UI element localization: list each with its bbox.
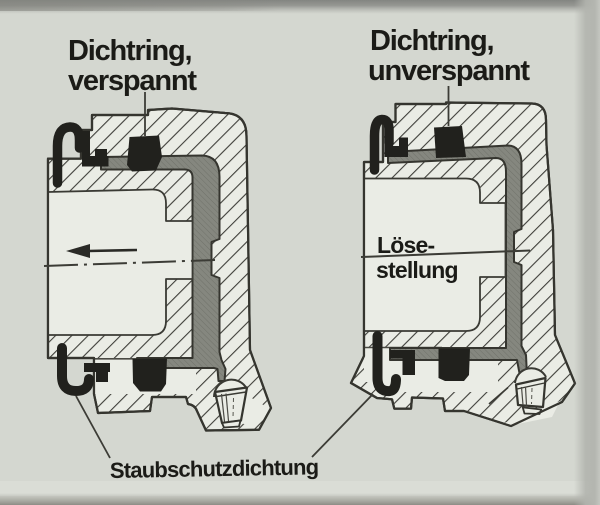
svg-text:Staubschutzdichtung: Staubschutzdichtung [110,454,319,483]
svg-text:Dichtring,: Dichtring, [68,35,191,67]
svg-text:Dichtring,: Dichtring, [370,25,493,57]
svg-text:Löse-: Löse- [377,232,434,258]
svg-text:unverspannt: unverspannt [368,55,530,87]
svg-text:verspannt: verspannt [68,65,197,97]
svg-text:stellung: stellung [376,257,458,283]
